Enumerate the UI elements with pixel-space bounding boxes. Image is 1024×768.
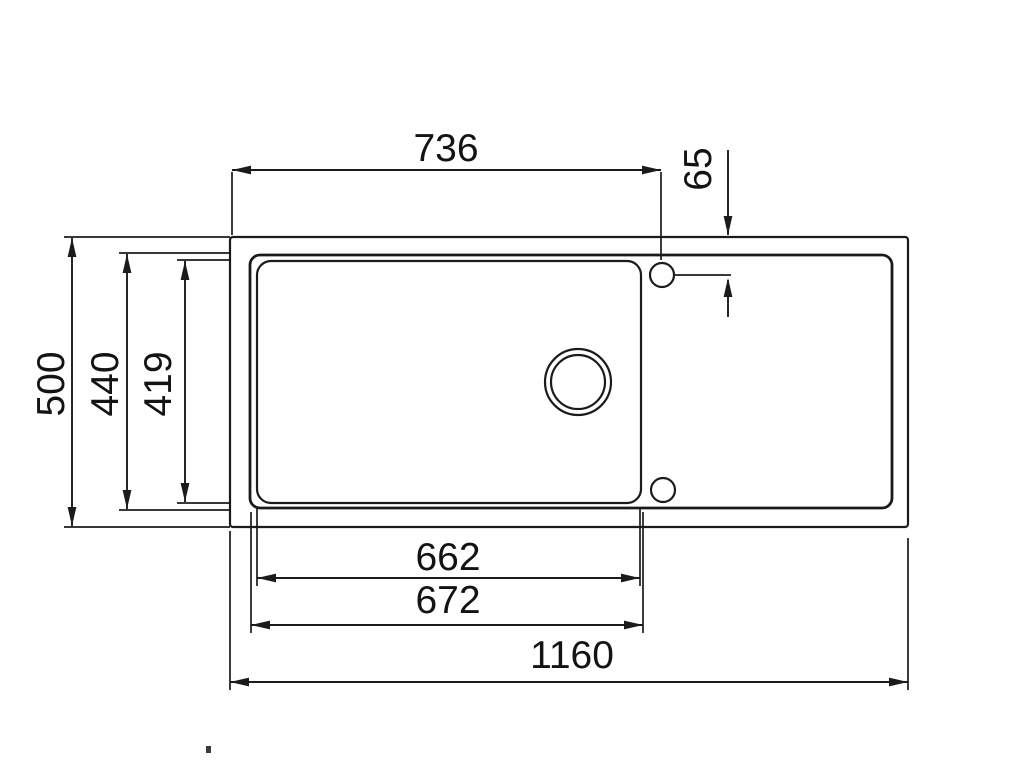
dim-419-arrow-bottom xyxy=(181,483,190,502)
dim-672-arrow-left xyxy=(251,621,270,630)
dim-419-label: 419 xyxy=(137,351,180,416)
dim-65-arrow-down xyxy=(724,216,733,235)
dim-672-arrow-right xyxy=(624,621,643,630)
dim-65-arrow-up xyxy=(724,278,733,297)
tap-hole-top xyxy=(650,263,674,287)
dim-440-arrow-top xyxy=(123,254,132,273)
dim-440-label: 440 xyxy=(84,351,127,416)
dim-662-arrow-left xyxy=(257,574,276,583)
dimension-662: 662 xyxy=(257,508,640,586)
dim-662-label: 662 xyxy=(415,536,480,579)
sink-outer-edge xyxy=(230,237,908,527)
tap-hole-bottom xyxy=(651,478,675,502)
dimension-736: 736 xyxy=(232,127,661,260)
dim-1160-arrow-right xyxy=(889,678,908,687)
dimension-65: 65 xyxy=(675,147,732,317)
dimension-1160: 1160 xyxy=(230,531,908,690)
dimension-419: 419 xyxy=(137,260,231,503)
dim-1160-label: 1160 xyxy=(530,634,614,677)
dim-662-arrow-right xyxy=(621,574,640,583)
dim-500-arrow-top xyxy=(68,238,77,257)
drain-hole-outer xyxy=(545,349,611,415)
sink-body xyxy=(230,237,908,527)
sink-bowl xyxy=(257,261,641,503)
sink-dimension-drawing: 736 65 500 440 xyxy=(0,0,1024,768)
stray-mark xyxy=(206,746,211,753)
dim-736-label: 736 xyxy=(413,127,478,170)
dimension-500: 500 xyxy=(30,237,230,527)
dim-419-arrow-top xyxy=(181,261,190,280)
dim-736-arrow-right xyxy=(642,166,661,175)
dim-500-arrow-bottom xyxy=(68,507,77,526)
dim-440-arrow-bottom xyxy=(123,490,132,509)
technical-drawing-canvas: 736 65 500 440 xyxy=(0,0,1024,768)
dim-736-arrow-left xyxy=(232,166,251,175)
dim-1160-arrow-left xyxy=(230,678,249,687)
drain-hole-inner xyxy=(551,355,605,409)
dim-500-label: 500 xyxy=(30,351,73,416)
sink-rim xyxy=(250,255,892,508)
dim-672-label: 672 xyxy=(415,579,480,622)
dim-65-label: 65 xyxy=(677,147,720,190)
